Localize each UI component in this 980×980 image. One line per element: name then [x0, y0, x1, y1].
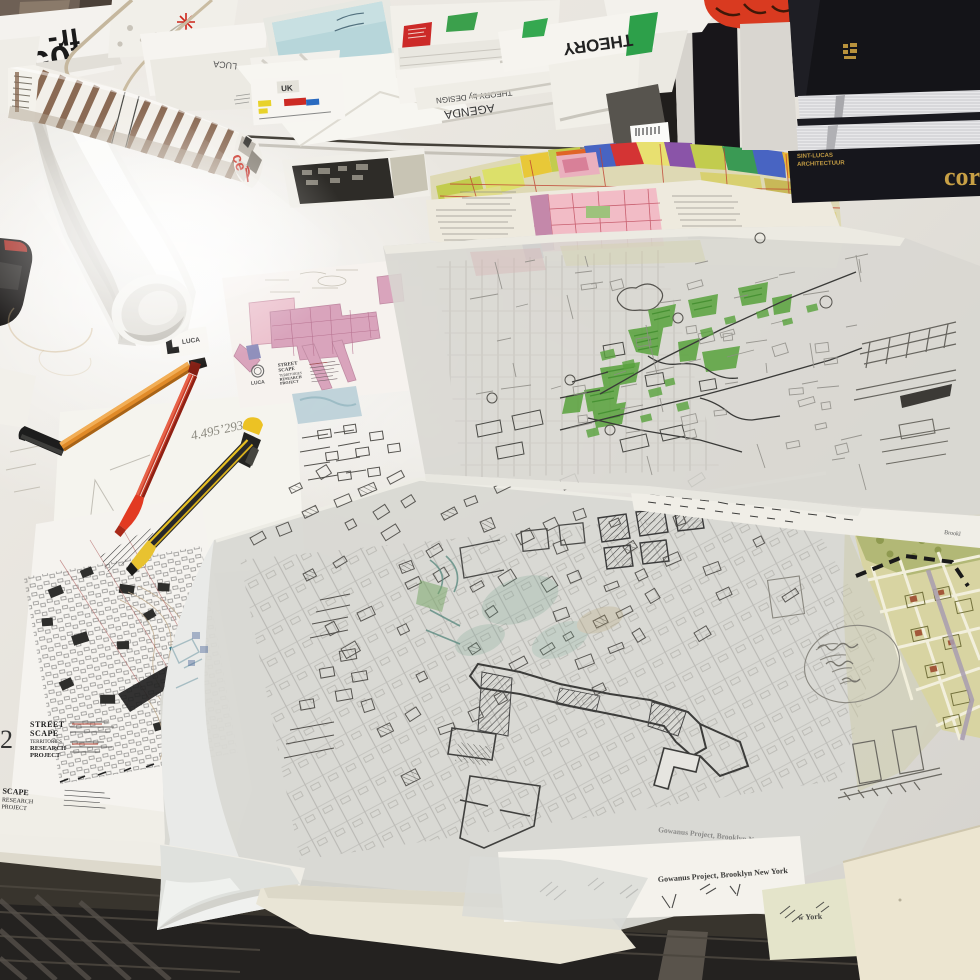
svg-text:2: 2: [0, 725, 13, 754]
svg-text:RESEARCH: RESEARCH: [30, 745, 66, 752]
svg-text:SINT-LUCAS: SINT-LUCAS: [797, 153, 833, 160]
svg-text:UK: UK: [281, 83, 293, 93]
svg-text:STREET: STREET: [30, 720, 65, 729]
svg-text:PROJECT: PROJECT: [30, 752, 61, 759]
svg-text:cor: cor: [944, 162, 980, 191]
svg-text:w York: w York: [798, 912, 823, 922]
svg-text:SCAPE: SCAPE: [2, 786, 29, 797]
svg-text:SCAPE: SCAPE: [30, 729, 59, 738]
